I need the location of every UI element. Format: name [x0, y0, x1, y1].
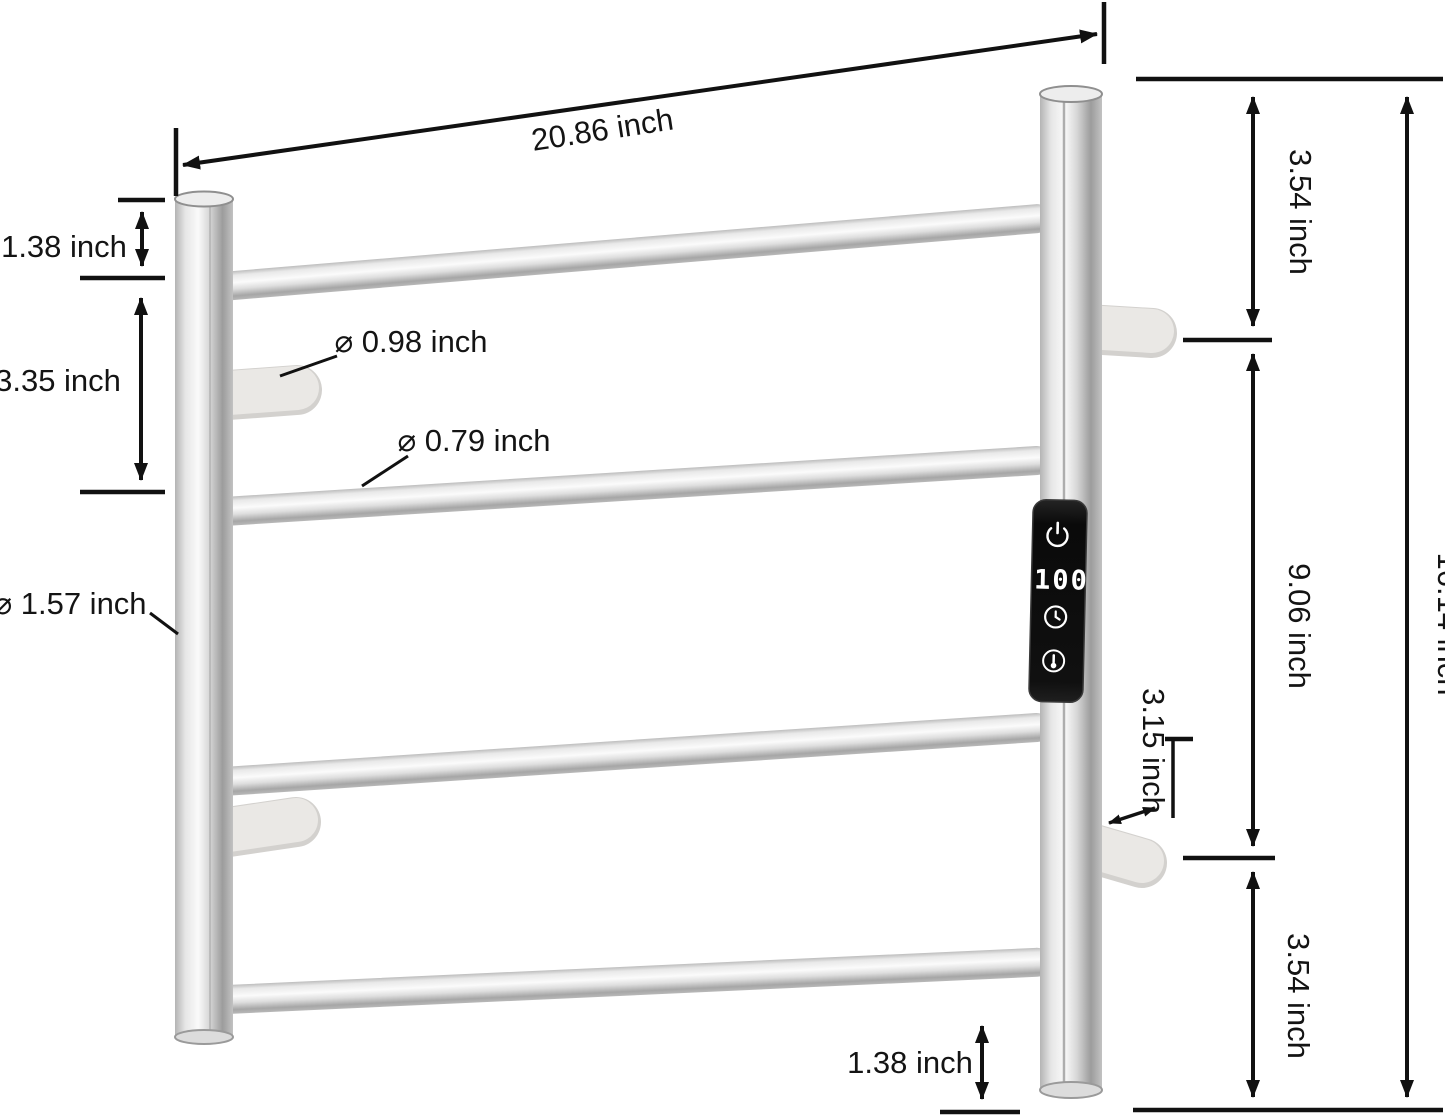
dim-total-height-label: 16.14 inch	[1431, 552, 1445, 695]
dim-left-span: 3.35 inch	[0, 298, 165, 492]
rung-3	[209, 712, 1052, 797]
dim-bottom-gap: 1.38 inch	[847, 1026, 1020, 1112]
dim-right-top-label: 3.54 inch	[1283, 149, 1318, 275]
led-display: 100	[1034, 564, 1089, 596]
dim-left-top-label: 1.38 inch	[1, 229, 127, 264]
rung-2	[209, 445, 1052, 527]
dim-left-span-label: 3.35 inch	[0, 363, 121, 398]
callout-peg-diameter: ⌀ 0.98 inch	[280, 324, 488, 376]
dim-right-span-label: 9.06 inch	[1282, 563, 1317, 689]
dim-standoff-label: 3.15 inch	[1136, 688, 1171, 814]
control-panel: 100	[1029, 499, 1091, 702]
dim-top-width: 20.86 inch	[176, 2, 1104, 196]
rung-4	[209, 947, 1051, 1015]
callout-post-diameter: ⌀ 1.57 inch	[0, 586, 178, 634]
post-diameter-label: ⌀ 1.57 inch	[0, 586, 147, 621]
rung-diameter-label: ⌀ 0.79 inch	[397, 423, 550, 458]
diagram-canvas: 100 20.86 inch 1.38 inch 3.35 inch ⌀ 0.9…	[0, 0, 1445, 1120]
left-post	[175, 192, 233, 1045]
rung-1	[209, 203, 1052, 302]
dim-right-bottom: 3.54 inch	[1133, 872, 1443, 1110]
dim-top-width-label: 20.86 inch	[529, 102, 676, 158]
dim-right-span: 9.06 inch	[1183, 354, 1317, 858]
dim-standoff: 3.15 inch	[1109, 688, 1193, 823]
peg-diameter-label: ⌀ 0.98 inch	[334, 324, 487, 359]
callout-rung-diameter: ⌀ 0.79 inch	[362, 423, 551, 486]
dim-total-height: 16.14 inch	[1407, 97, 1445, 1097]
dim-right-bottom-label: 3.54 inch	[1281, 933, 1316, 1059]
dim-right-top: 3.54 inch	[1136, 79, 1443, 340]
dim-bottom-gap-label: 1.38 inch	[847, 1045, 973, 1080]
towel-warmer-dimension-diagram: 100 20.86 inch 1.38 inch 3.35 inch ⌀ 0.9…	[0, 0, 1445, 1120]
dim-left-top: 1.38 inch	[1, 200, 165, 278]
